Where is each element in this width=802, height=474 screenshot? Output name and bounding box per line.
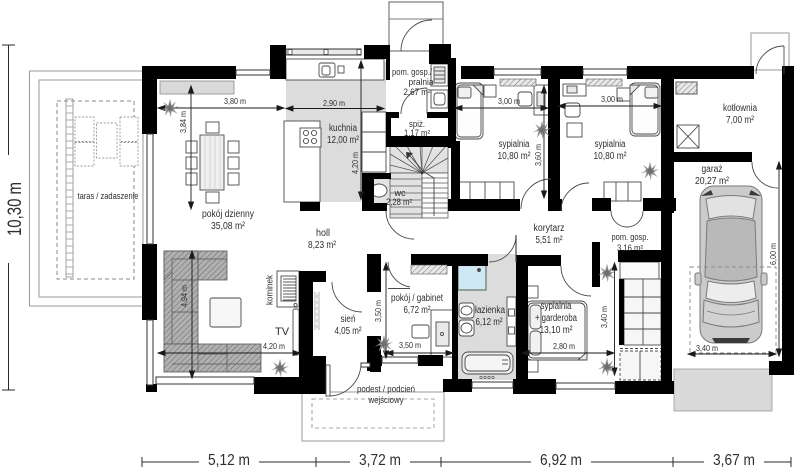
svg-text:3,40 m: 3,40 m [696, 343, 718, 353]
svg-text:4,05 m²: 4,05 m² [335, 326, 363, 337]
svg-text:+ garderoba: + garderoba [535, 313, 577, 324]
svg-text:3,67 m: 3,67 m [713, 452, 755, 469]
svg-text:podest / podcień: podest / podcień [357, 384, 415, 394]
svg-text:6,92 m: 6,92 m [540, 452, 582, 469]
svg-text:20,27 m²: 20,27 m² [695, 176, 730, 187]
svg-text:wejściowy: wejściowy [368, 395, 404, 405]
svg-text:sypialnia: sypialnia [541, 301, 572, 312]
svg-text:TV: TV [275, 326, 290, 338]
svg-text:3,84 m: 3,84 m [178, 111, 188, 133]
svg-text:4,94 m: 4,94 m [179, 285, 189, 307]
svg-text:kuchnia: kuchnia [329, 123, 357, 134]
svg-text:2,28 m²: 2,28 m² [386, 197, 412, 207]
svg-text:2,67 m²: 2,67 m² [404, 87, 431, 97]
svg-text:sypialnia: sypialnia [499, 139, 530, 150]
svg-text:kotłownia: kotłownia [723, 103, 757, 114]
svg-text:2,90 m: 2,90 m [323, 98, 345, 108]
svg-text:7,00 m²: 7,00 m² [726, 115, 755, 126]
svg-text:3,50 m: 3,50 m [399, 340, 421, 350]
svg-text:sypialnia: sypialnia [595, 139, 626, 150]
svg-text:3,80 m: 3,80 m [224, 96, 246, 106]
svg-text:8,23 m²: 8,23 m² [308, 240, 337, 251]
svg-text:3,50 m: 3,50 m [373, 300, 383, 322]
svg-text:łazienka: łazienka [475, 305, 505, 316]
svg-text:holl: holl [316, 228, 330, 239]
svg-text:3,00 m: 3,00 m [601, 94, 623, 104]
svg-text:sień: sień [341, 314, 356, 325]
svg-text:6,72 m²: 6,72 m² [404, 305, 432, 316]
svg-text:4,20 m: 4,20 m [350, 152, 360, 174]
svg-text:kominek: kominek [265, 275, 275, 305]
svg-text:10,80 m²: 10,80 m² [498, 151, 532, 162]
svg-text:35,08 m²: 35,08 m² [211, 221, 246, 232]
svg-text:13,10 m²: 13,10 m² [540, 325, 574, 336]
svg-text:3,72 m: 3,72 m [359, 452, 401, 469]
svg-text:garaż: garaż [702, 164, 723, 175]
svg-text:3,16 m²: 3,16 m² [617, 243, 643, 253]
svg-text:korytarz: korytarz [534, 223, 565, 234]
svg-text:4,20 m: 4,20 m [263, 341, 285, 351]
svg-text:3,00 m: 3,00 m [498, 96, 520, 106]
svg-text:5,51 m²: 5,51 m² [536, 235, 564, 246]
svg-text:2,80 m: 2,80 m [553, 341, 575, 351]
svg-text:10,80 m²: 10,80 m² [594, 151, 628, 162]
svg-text:6,00 m: 6,00 m [768, 243, 778, 265]
svg-text:pom. gosp.: pom. gosp. [612, 232, 649, 242]
svg-text:12,00 m²: 12,00 m² [327, 135, 360, 146]
svg-text:pom. gosp./: pom. gosp./ [392, 67, 432, 77]
svg-text:pokój / gabinet: pokój / gabinet [391, 293, 443, 304]
svg-text:3,60 m: 3,60 m [533, 144, 543, 166]
svg-text:taras / zadaszenie: taras / zadaszenie [78, 191, 139, 202]
svg-text:pralnia: pralnia [409, 77, 434, 87]
svg-text:3,40 m: 3,40 m [599, 306, 609, 328]
svg-text:10,30 m: 10,30 m [5, 182, 26, 236]
svg-text:5,12 m: 5,12 m [208, 452, 250, 469]
svg-text:1,17 m²: 1,17 m² [404, 128, 430, 138]
svg-text:pokój dzienny: pokój dzienny [202, 209, 254, 220]
svg-text:6,12 m²: 6,12 m² [476, 317, 504, 328]
